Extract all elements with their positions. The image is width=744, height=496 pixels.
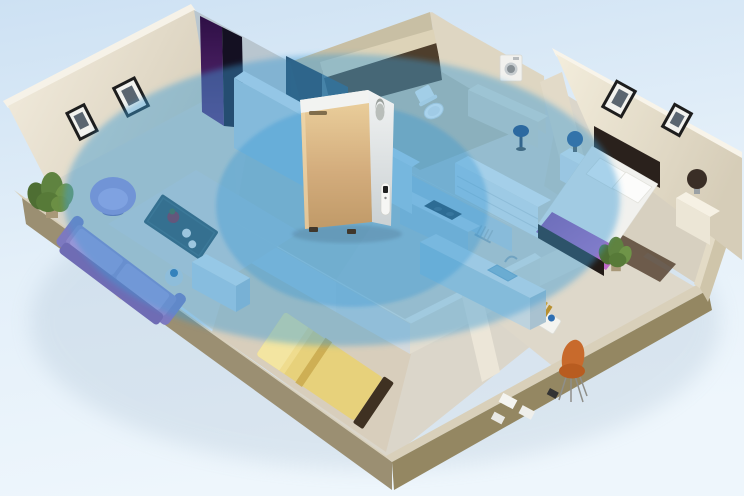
air-purifier [292,90,402,243]
purifier-front-face [301,103,372,229]
washing-machine [500,55,522,81]
purifier-foot-left [309,227,318,232]
brand-mark [309,111,327,115]
scene: Isometric 3D cutaway rendering of an apa… [0,0,744,496]
purifier-foot-right [347,229,356,234]
control-strip [381,183,390,215]
handle-cutout [376,104,385,121]
